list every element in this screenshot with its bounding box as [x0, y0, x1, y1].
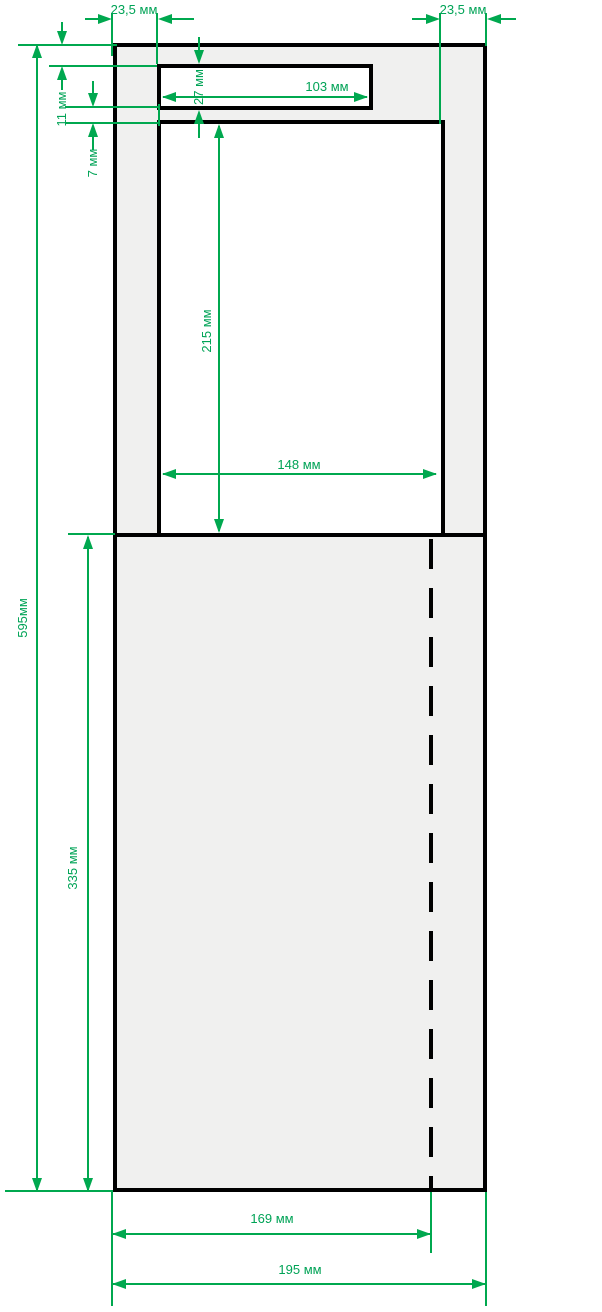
dim-label-lower-height: 335 мм — [66, 846, 80, 889]
extension-line — [65, 106, 160, 108]
dim-label-top-to-slot: 11 мм — [55, 92, 69, 127]
arrowhead-down-icon — [214, 519, 224, 533]
arrowhead-left-icon — [162, 469, 176, 479]
dim-label-slot-to-window: 7 мм — [86, 149, 100, 178]
dimension-line — [501, 18, 516, 20]
extension-line — [158, 104, 160, 126]
extension-line — [430, 1192, 432, 1253]
arrowhead-up-icon — [32, 44, 42, 58]
dimension-line — [113, 1233, 430, 1235]
dimension-line — [198, 37, 200, 50]
dim-label-window-width: 148 мм — [277, 458, 320, 472]
arrowhead-up-icon — [88, 123, 98, 137]
dimension-line — [36, 46, 38, 1190]
arrowhead-down-icon — [57, 31, 67, 45]
extension-line — [5, 1190, 113, 1192]
arrowhead-down-icon — [83, 1178, 93, 1192]
arrowhead-left-icon — [158, 14, 172, 24]
arrowhead-left-icon — [487, 14, 501, 24]
dim-label-slot-width: 103 мм — [305, 80, 348, 94]
arrowhead-right-icon — [426, 14, 440, 24]
arrowhead-up-icon — [194, 110, 204, 124]
dimension-line — [198, 124, 200, 138]
arrowhead-up-icon — [214, 124, 224, 138]
dim-label-slot-height: 27 мм — [192, 69, 206, 105]
dim-label-top-left-margin: 23,5 мм — [111, 3, 158, 17]
dim-label-top-right-margin: 23,5 мм — [440, 3, 487, 17]
dim-label-window-height: 215 мм — [200, 309, 214, 352]
arrowhead-left-icon — [162, 92, 176, 102]
dimension-line — [412, 18, 426, 20]
arrowhead-down-icon — [88, 93, 98, 107]
dimension-line — [113, 1283, 485, 1285]
arrowhead-up-icon — [83, 535, 93, 549]
extension-line — [65, 122, 160, 124]
dimension-line — [85, 18, 99, 20]
dim-label-total-width: 195 мм — [278, 1263, 321, 1277]
dim-label-total-height: 595мм — [16, 598, 30, 638]
dimension-line — [61, 80, 63, 90]
arrowhead-right-icon — [417, 1229, 431, 1239]
dimension-line — [172, 18, 194, 20]
arrowhead-up-icon — [57, 66, 67, 80]
dim-label-fold-offset: 169 мм — [250, 1212, 293, 1226]
arrowhead-right-icon — [354, 92, 368, 102]
arrowhead-left-icon — [112, 1279, 126, 1289]
technical-drawing: 23,5 мм 23,5 мм 103 мм 27 мм 11 мм — [0, 0, 602, 1312]
arrowhead-down-icon — [194, 50, 204, 64]
dimension-line — [218, 126, 220, 531]
extension-line — [439, 13, 441, 124]
arrowhead-left-icon — [112, 1229, 126, 1239]
dimension-line — [163, 473, 436, 475]
arrowhead-right-icon — [472, 1279, 486, 1289]
arrowhead-down-icon — [32, 1178, 42, 1192]
fold-dashed-line — [429, 539, 433, 1190]
dimension-line — [87, 537, 89, 1190]
arrowhead-right-icon — [423, 469, 437, 479]
